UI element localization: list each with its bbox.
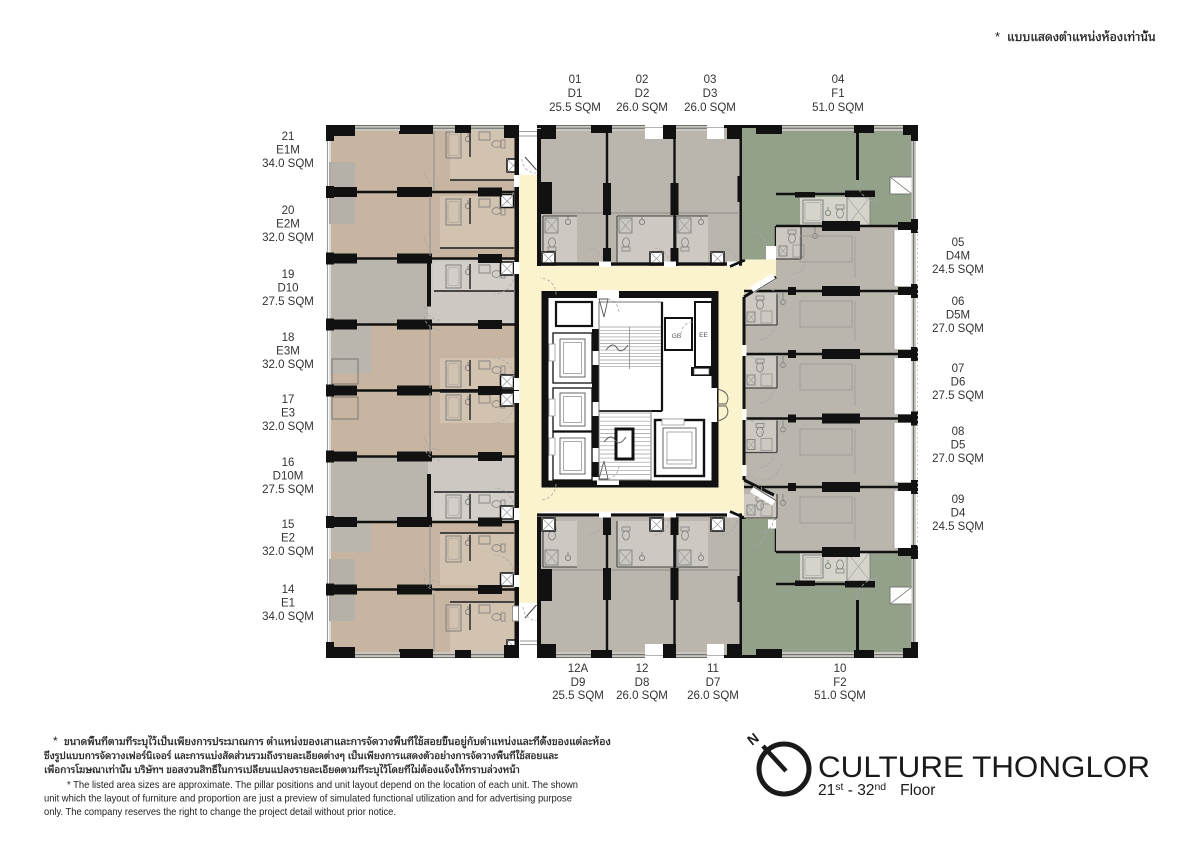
svg-text:14: 14 <box>282 584 295 596</box>
svg-text:D2: D2 <box>635 88 650 100</box>
svg-text:04: 04 <box>832 74 845 86</box>
svg-text:32.0 SQM: 32.0 SQM <box>262 546 314 558</box>
svg-text:CULTURE THONGLOR: CULTURE THONGLOR <box>818 751 1150 784</box>
svg-text:E1M: E1M <box>276 145 300 157</box>
svg-text:* The listed area sizes are ap: * The listed area sizes are approximate.… <box>67 779 578 791</box>
svg-text:05: 05 <box>952 237 965 249</box>
svg-text:E2M: E2M <box>276 219 300 231</box>
svg-text:*: * <box>53 734 58 748</box>
svg-text:27.0 SQM: 27.0 SQM <box>932 323 984 335</box>
svg-text:D3: D3 <box>703 88 718 100</box>
svg-text:only. The company reserves the: only. The company reserves the right to … <box>44 806 396 818</box>
svg-text:D10M: D10M <box>273 471 304 483</box>
svg-text:27.5 SQM: 27.5 SQM <box>932 390 984 402</box>
svg-text:27.0 SQM: 27.0 SQM <box>932 453 984 465</box>
svg-text:32.0 SQM: 32.0 SQM <box>262 421 314 433</box>
svg-text:16: 16 <box>282 457 295 469</box>
svg-text:51.0 SQM: 51.0 SQM <box>812 102 864 114</box>
svg-text:08: 08 <box>952 426 965 438</box>
svg-text:26.0 SQM: 26.0 SQM <box>616 690 668 702</box>
svg-text:26.0 SQM: 26.0 SQM <box>684 102 736 114</box>
svg-text:25.5 SQM: 25.5 SQM <box>552 690 604 702</box>
svg-text:51.0 SQM: 51.0 SQM <box>814 690 866 702</box>
svg-text:19: 19 <box>282 269 295 281</box>
svg-text:D5: D5 <box>951 440 966 452</box>
svg-text:D4: D4 <box>951 508 966 520</box>
svg-text:EE: EE <box>699 332 708 339</box>
svg-text:27.5 SQM: 27.5 SQM <box>262 296 314 308</box>
svg-text:D5M: D5M <box>946 310 970 322</box>
svg-text:18: 18 <box>282 332 295 344</box>
svg-text:03: 03 <box>704 74 717 86</box>
svg-text:32.0 SQM: 32.0 SQM <box>262 359 314 371</box>
svg-text:26.0 SQM: 26.0 SQM <box>687 690 739 702</box>
svg-text:F2: F2 <box>833 677 846 689</box>
svg-text:27.5 SQM: 27.5 SQM <box>262 484 314 496</box>
svg-text:06: 06 <box>952 296 965 308</box>
svg-text:01: 01 <box>569 74 582 86</box>
svg-text:34.0 SQM: 34.0 SQM <box>262 611 314 623</box>
svg-text:*: * <box>995 29 1000 44</box>
svg-text:GB: GB <box>672 333 681 340</box>
svg-text:D6: D6 <box>951 377 966 389</box>
svg-text:D9: D9 <box>571 677 586 689</box>
svg-text:E3M: E3M <box>276 346 300 358</box>
svg-text:F1: F1 <box>831 88 844 100</box>
svg-text:15: 15 <box>282 519 295 531</box>
svg-text:E3: E3 <box>281 408 295 420</box>
svg-text:07: 07 <box>952 363 965 375</box>
svg-text:26.0 SQM: 26.0 SQM <box>616 102 668 114</box>
svg-text:21: 21 <box>282 131 295 143</box>
svg-text:11: 11 <box>707 663 719 675</box>
svg-text:24.5 SQM: 24.5 SQM <box>932 264 984 276</box>
svg-text:E2: E2 <box>281 533 295 545</box>
svg-text:25.5 SQM: 25.5 SQM <box>549 102 601 114</box>
svg-text:D10: D10 <box>277 283 298 295</box>
svg-text:D1: D1 <box>568 88 583 100</box>
svg-text:17: 17 <box>282 394 295 406</box>
svg-text:D8: D8 <box>635 677 650 689</box>
svg-text:32.0 SQM: 32.0 SQM <box>262 232 314 244</box>
svg-text:09: 09 <box>952 494 965 506</box>
svg-text:D4M: D4M <box>946 251 970 263</box>
svg-text:34.0 SQM: 34.0 SQM <box>262 158 314 170</box>
svg-text:unit which the layout of furni: unit which the layout of furniture and p… <box>44 793 572 805</box>
svg-text:10: 10 <box>834 663 847 675</box>
svg-text:E1: E1 <box>281 598 295 610</box>
svg-text:20: 20 <box>282 205 295 217</box>
svg-text:02: 02 <box>636 74 649 86</box>
svg-text:D7: D7 <box>706 677 721 689</box>
svg-text:12: 12 <box>636 663 649 675</box>
svg-text:12A: 12A <box>568 663 589 675</box>
svg-text:24.5 SQM: 24.5 SQM <box>932 521 984 533</box>
